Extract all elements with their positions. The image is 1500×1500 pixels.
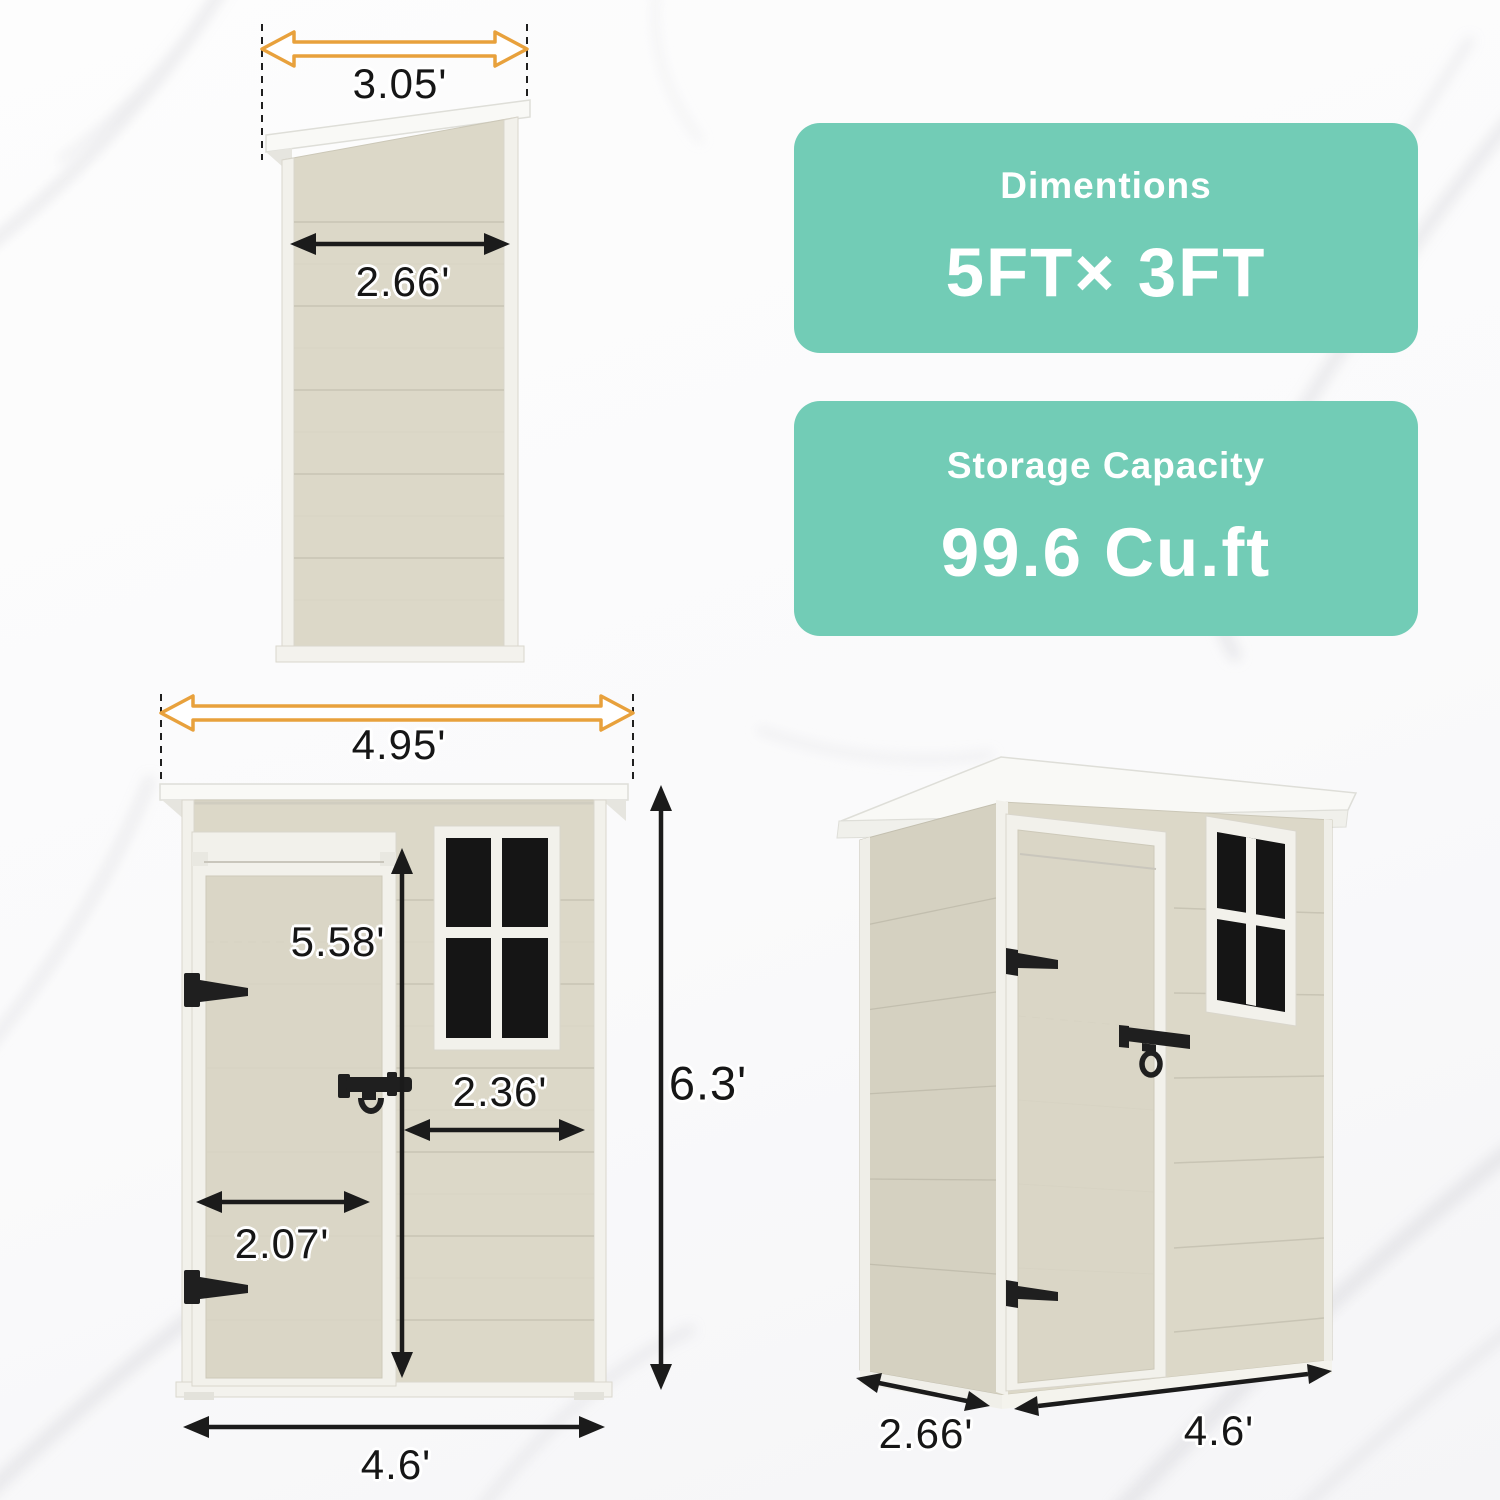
perspective-left-wall — [860, 802, 1002, 1395]
perspective-door — [1018, 830, 1154, 1383]
capacity-badge-title: Storage Capacity — [947, 445, 1265, 487]
perspective-width-label: 4.6' — [1184, 1407, 1254, 1455]
dimensions-badge-value: 5FT× 3FT — [946, 233, 1267, 312]
side-shed-drawing — [266, 100, 530, 662]
front-roof-width-label: 4.95' — [352, 721, 447, 769]
side-roof-width-label: 3.05' — [353, 60, 448, 108]
front-base-width-arrow-icon — [183, 1416, 605, 1438]
side-wall — [282, 117, 518, 657]
front-panel-width-label: 2.36' — [453, 1068, 548, 1116]
side-wall-right-trim — [504, 117, 518, 657]
front-view: 4.95' 5.58' 2.36' 2.07' 4.6' 6.3' — [140, 690, 760, 1500]
dimensions-badge-title: Dimentions — [1000, 165, 1211, 207]
front-roof — [160, 784, 628, 800]
perspective-view: 2.66' 4.6' — [810, 740, 1410, 1500]
front-total-height-label: 6.3' — [669, 1056, 747, 1111]
front-shed-drawing — [160, 784, 628, 1400]
front-door-width-label: 2.07' — [235, 1220, 330, 1268]
perspective-depth-label: 2.66' — [879, 1410, 974, 1458]
front-wall-right-trim — [594, 800, 606, 1382]
side-body-width-label: 2.66' — [356, 258, 451, 306]
shed-dimension-infographic: 3.05' 2.66' Dimentions 5FT× 3FT Storage … — [0, 0, 1500, 1500]
capacity-badge-value: 99.6 Cu.ft — [941, 513, 1272, 592]
side-wall-left-trim — [282, 158, 294, 657]
perspective-back-corner-trim — [860, 837, 870, 1372]
front-base-width-label: 4.6' — [361, 1441, 431, 1489]
perspective-right-corner-trim — [1324, 819, 1332, 1361]
dimensions-badge: Dimentions 5FT× 3FT — [794, 123, 1418, 353]
side-view: 3.05' 2.66' — [140, 10, 560, 690]
front-door-height-label: 5.58' — [291, 918, 386, 966]
perspective-shed-drawing — [837, 757, 1356, 1409]
capacity-badge: Storage Capacity 99.6 Cu.ft — [794, 401, 1418, 636]
side-base — [276, 646, 524, 662]
